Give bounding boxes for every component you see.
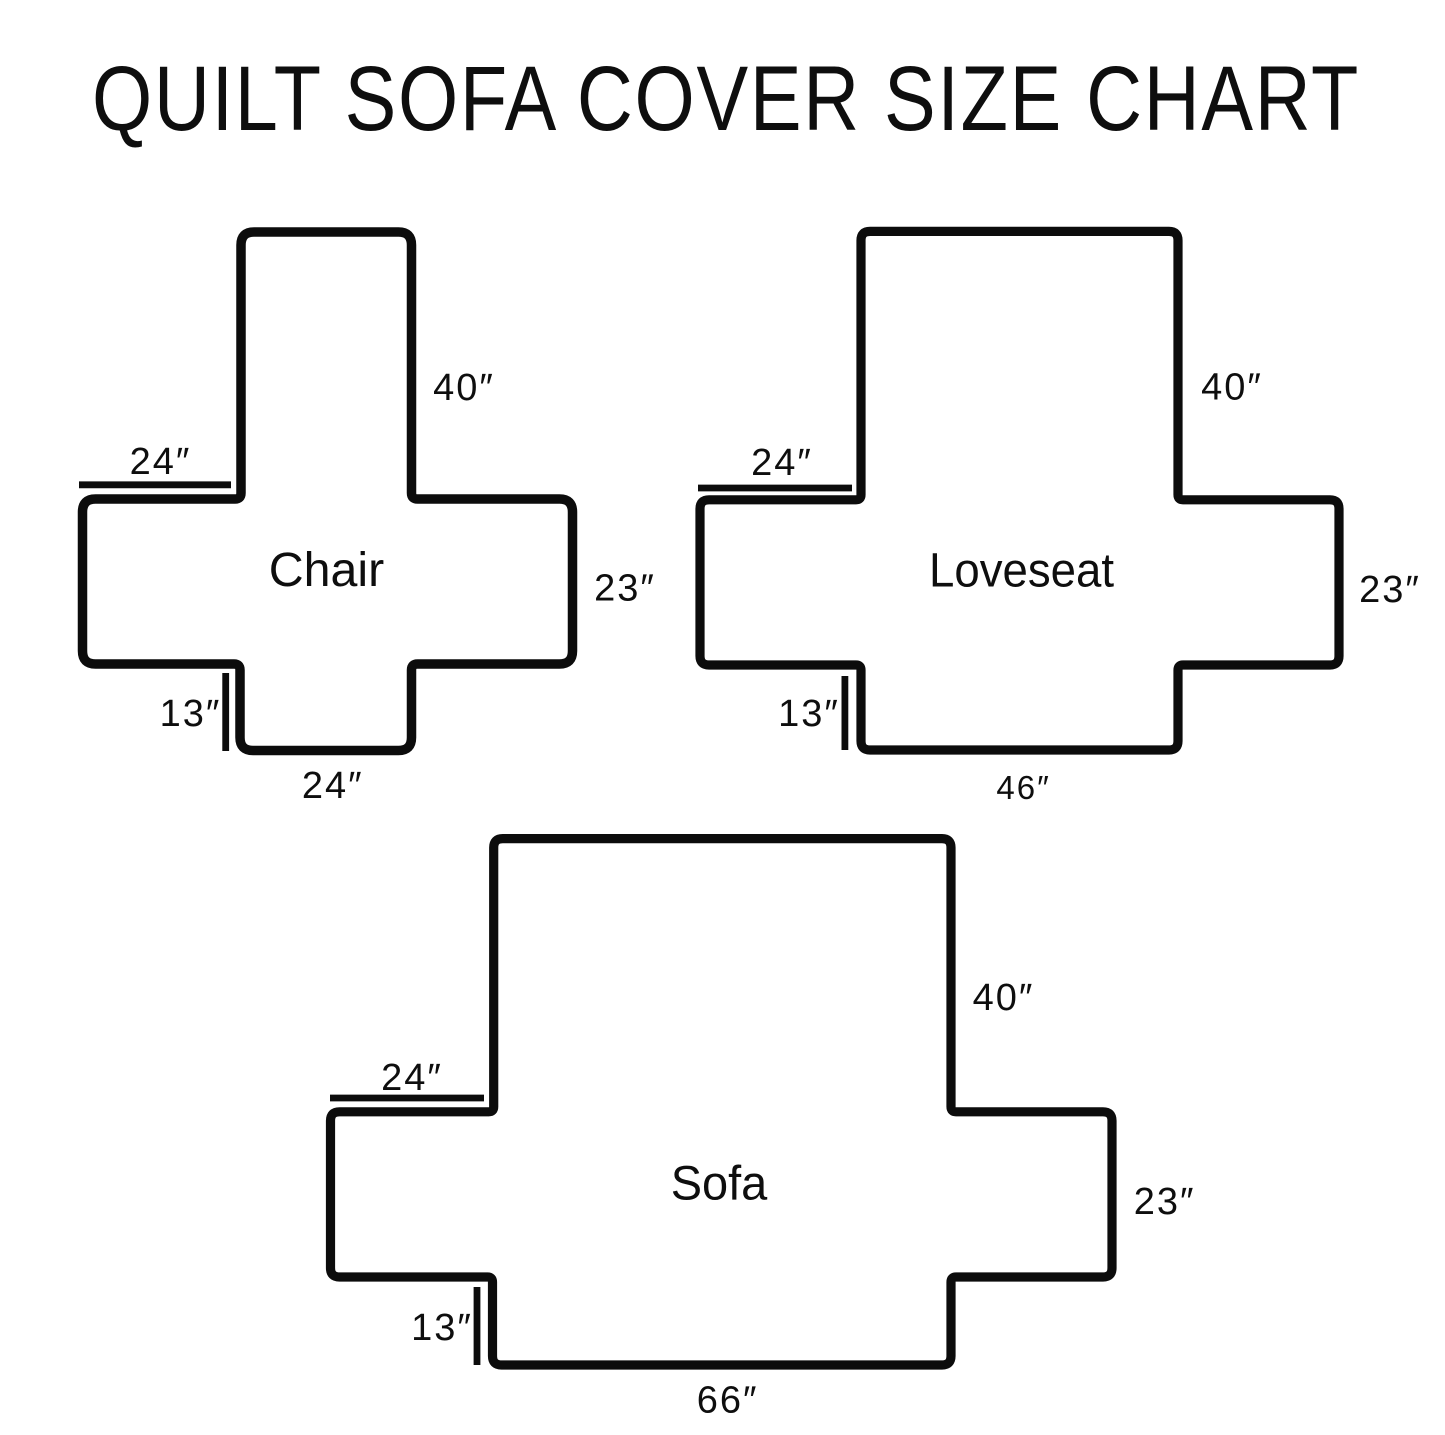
svg-text:40″: 40″: [433, 367, 495, 409]
svg-text:Loveseat: Loveseat: [929, 544, 1114, 597]
svg-text:40″: 40″: [1201, 366, 1263, 408]
svg-text:13″: 13″: [160, 693, 222, 735]
svg-text:13″: 13″: [411, 1307, 473, 1349]
svg-text:40″: 40″: [973, 977, 1035, 1019]
svg-text:Sofa: Sofa: [671, 1157, 768, 1210]
svg-text:24″: 24″: [381, 1057, 443, 1099]
svg-text:23″: 23″: [594, 568, 656, 610]
svg-text:QUILT SOFA COVER SIZE CHART: QUILT SOFA COVER SIZE CHART: [92, 48, 1360, 150]
svg-text:66″: 66″: [697, 1379, 759, 1421]
svg-text:24″: 24″: [130, 441, 192, 483]
svg-text:23″: 23″: [1359, 569, 1421, 611]
svg-text:24″: 24″: [302, 765, 364, 807]
svg-text:Chair: Chair: [269, 544, 385, 597]
svg-text:13″: 13″: [778, 693, 840, 735]
svg-text:46″: 46″: [996, 769, 1050, 806]
svg-text:24″: 24″: [751, 442, 813, 484]
svg-text:23″: 23″: [1134, 1181, 1196, 1223]
